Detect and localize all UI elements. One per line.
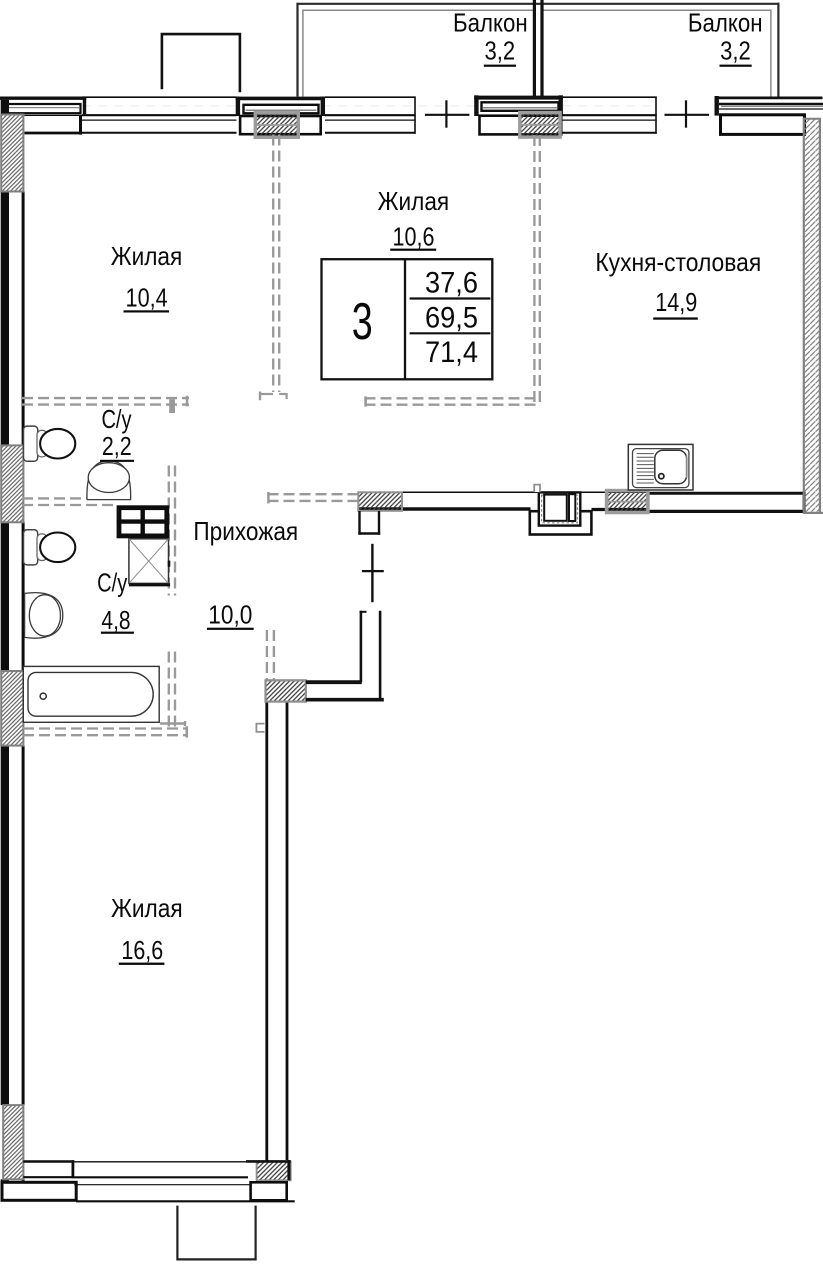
svg-text:Прихожая: Прихожая [193, 518, 298, 546]
svg-text:Балкон: Балкон [688, 10, 763, 38]
svg-text:Балкон: Балкон [453, 10, 528, 38]
svg-text:3: 3 [352, 292, 373, 350]
svg-text:16,6: 16,6 [121, 937, 163, 965]
svg-text:3,2: 3,2 [484, 38, 515, 66]
svg-text:Жилая: Жилая [111, 895, 183, 923]
svg-text:10,4: 10,4 [126, 285, 168, 313]
svg-text:10,6: 10,6 [393, 223, 435, 251]
svg-text:69,5: 69,5 [425, 301, 478, 334]
svg-text:71,4: 71,4 [425, 336, 478, 369]
svg-text:37,6: 37,6 [425, 267, 478, 300]
svg-text:3,2: 3,2 [720, 38, 751, 66]
svg-text:С/у: С/у [101, 406, 131, 434]
svg-text:Жилая: Жилая [378, 188, 450, 216]
svg-text:2,2: 2,2 [102, 433, 132, 461]
svg-text:Жилая: Жилая [111, 243, 183, 271]
svg-text:Кухня-столовая: Кухня-столовая [595, 249, 761, 277]
svg-text:10,0: 10,0 [208, 602, 252, 630]
svg-text:4,8: 4,8 [101, 607, 130, 635]
svg-text:14,9: 14,9 [655, 289, 697, 317]
svg-text:С/у: С/у [97, 569, 127, 597]
